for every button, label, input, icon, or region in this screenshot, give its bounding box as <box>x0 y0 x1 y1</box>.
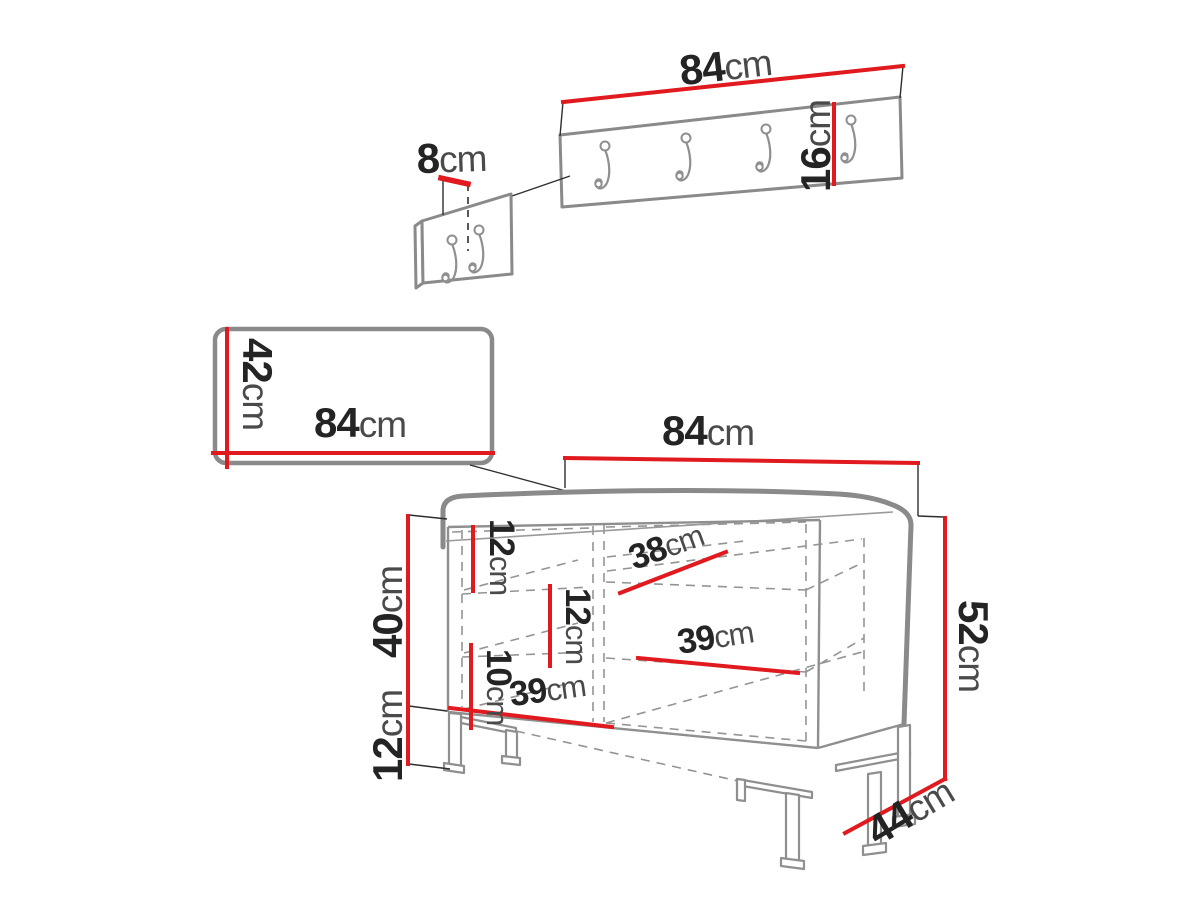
cabinet-height-label: 40cm <box>364 566 411 658</box>
diagram-canvas: 84cm 16cm 8cm 42cm 84cm <box>0 0 1200 900</box>
shelf-middle-width-dimension-line <box>638 658 798 673</box>
leg-foot-front-right <box>781 858 804 869</box>
leg-post-back-left <box>506 730 517 760</box>
shelf-middle-width-label: 39cm <box>674 611 755 661</box>
leg-stub-front-right <box>737 779 745 801</box>
leg-height-label: 12cm <box>364 690 411 782</box>
hook-spacing-label: 8cm <box>416 133 487 182</box>
mirror-panel: 42cm 84cm <box>213 329 577 494</box>
rack-width-extension-right <box>900 66 903 98</box>
detail-board-face <box>422 194 512 283</box>
cabinet-side-bottom-edge <box>818 724 904 748</box>
cabinet-height-extension-bottom <box>409 706 447 711</box>
compartment-top-label: 12cm <box>482 519 521 595</box>
bench-legs <box>444 713 915 869</box>
rack-height-label: 16cm <box>792 100 839 192</box>
leg-foot-back-left <box>502 756 520 765</box>
shoe-bench: 84cm 52cm 44cm 40cm 12cm 12cm 12cm 10cm … <box>364 407 997 869</box>
bench-width-label: 84cm <box>662 407 754 454</box>
dimension-diagram: 84cm 16cm 8cm 42cm 84cm <box>0 0 1200 900</box>
hook-detail-panel: 8cm <box>415 133 570 288</box>
cabinet-right-edge <box>818 520 820 748</box>
coat-rack-board <box>560 97 902 207</box>
leg-rail-front-right <box>737 779 812 798</box>
mirror-callout-line <box>470 465 577 494</box>
leg-post-front-left <box>449 713 461 770</box>
rack-width-label: 84cm <box>677 37 774 94</box>
shelf-bottom-width-label: 39cm <box>507 665 588 714</box>
mirror-width-label: 84cm <box>314 399 406 446</box>
mirror-height-label: 42cm <box>234 338 281 430</box>
bench-interior-dimensions: 12cm 12cm 10cm 38cm 39cm 39cm <box>450 515 798 728</box>
compartment-middle-label: 12cm <box>558 588 597 664</box>
bench-width-dimension-line <box>565 458 918 463</box>
coat-rack-panel: 84cm 16cm <box>560 37 903 207</box>
bench-height-label: 52cm <box>950 600 997 692</box>
bench-height-extension-top <box>918 516 944 517</box>
leg-post-front-right <box>786 793 799 862</box>
rack-width-extension-left <box>560 102 563 136</box>
